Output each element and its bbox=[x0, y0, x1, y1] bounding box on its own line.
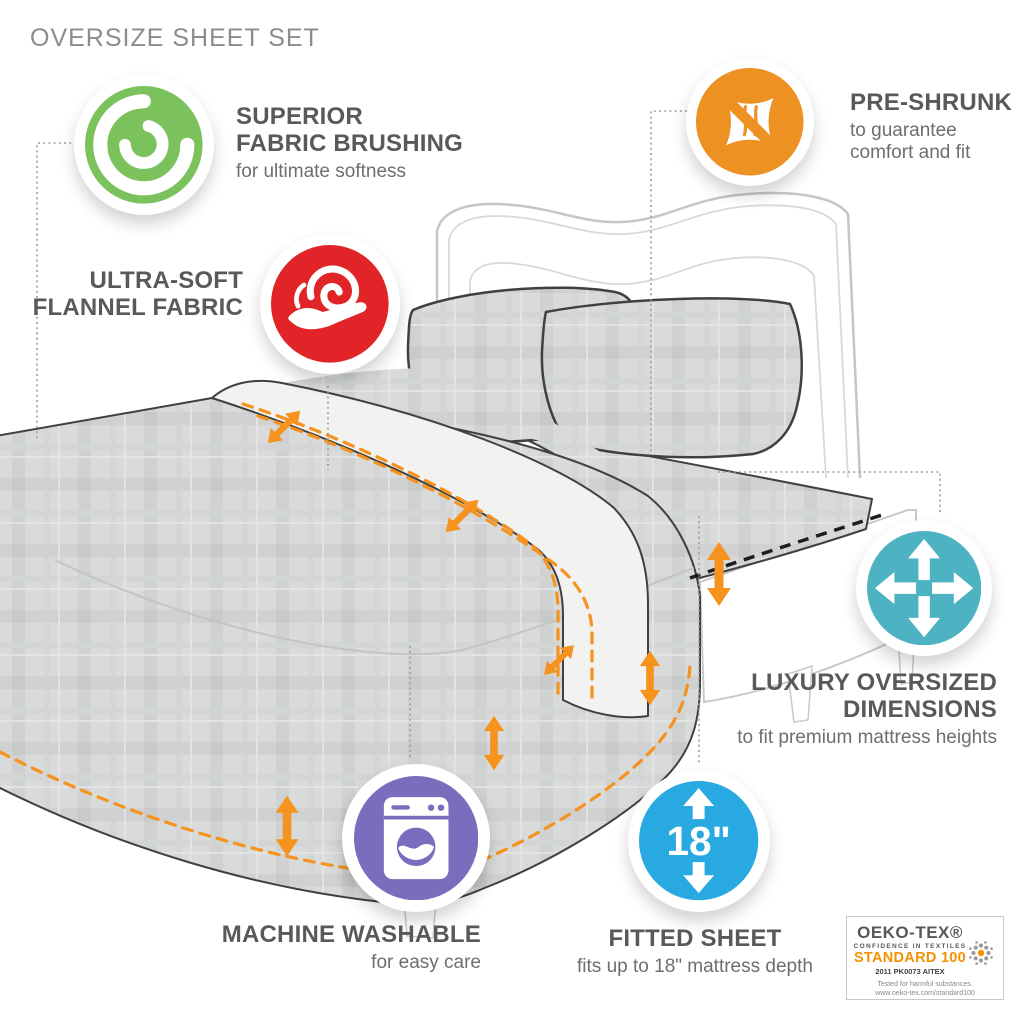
feature-subtitle: to guarantee bbox=[850, 120, 1012, 142]
feature-subtitle: comfort and fit bbox=[850, 142, 1012, 164]
feature-title-line: MACHINE WASHABLE bbox=[222, 922, 481, 949]
feature-title-line: FLANNEL FABRIC bbox=[33, 295, 243, 322]
feature-subtitle: for easy care bbox=[222, 952, 481, 974]
feature-text-dimensions: LUXURY OVERSIZED DIMENSIONS to fit premi… bbox=[737, 670, 997, 749]
badge-washable bbox=[342, 764, 490, 912]
feature-text-brushing: SUPERIOR FABRIC BRUSHING for ultimate so… bbox=[236, 104, 463, 183]
feature-title-line: FITTED SHEET bbox=[535, 926, 855, 953]
feature-subtitle: to fit premium mattress heights bbox=[737, 727, 997, 749]
feature-text-washable: MACHINE WASHABLE for easy care bbox=[222, 922, 481, 974]
depth-value-label: 18" bbox=[667, 818, 731, 864]
no-shrink-fabric-icon bbox=[696, 68, 804, 176]
badge-fabric-brushing bbox=[74, 75, 214, 215]
hand-holding-fabric-icon bbox=[271, 245, 389, 363]
oeko-tex-brand: OEKO-TEX® bbox=[847, 924, 973, 941]
pillow-right bbox=[542, 298, 802, 457]
brushed-fabric-swirl-icon bbox=[85, 86, 203, 204]
feature-title-line: LUXURY OVERSIZED bbox=[737, 670, 997, 697]
expand-arrows-icon bbox=[867, 531, 981, 645]
feature-title-line: SUPERIOR bbox=[236, 104, 463, 131]
oeko-tex-flower-icon bbox=[966, 938, 996, 968]
feature-text-preshrunk: PRE-SHRUNK to guarantee comfort and fit bbox=[850, 90, 1012, 165]
feature-text-flannel: ULTRA-SOFT FLANNEL FABRIC bbox=[33, 268, 243, 322]
feature-title-line: FABRIC BRUSHING bbox=[236, 131, 463, 158]
oeko-tex-certification-box: OEKO-TEX® CONFIDENCE IN TEXTILES STANDAR… bbox=[846, 916, 1004, 1000]
badge-preshrunk bbox=[686, 58, 814, 186]
infographic-canvas: OVERSIZE SHEET SET bbox=[0, 0, 1024, 1024]
feature-subtitle: fits up to 18" mattress depth bbox=[535, 956, 855, 978]
feature-title-line: PRE-SHRUNK bbox=[850, 90, 1012, 117]
badge-fitted-sheet: 18" bbox=[628, 770, 770, 912]
badge-flannel bbox=[260, 234, 400, 374]
depth-arrows-icon: 18" bbox=[639, 781, 758, 900]
badge-dimensions bbox=[856, 520, 992, 656]
oeko-tex-note: Tested for harmful substances. bbox=[847, 980, 1003, 989]
feature-title-line: ULTRA-SOFT bbox=[33, 268, 243, 295]
feature-text-fitted: FITTED SHEET fits up to 18" mattress dep… bbox=[535, 926, 855, 978]
washing-machine-icon bbox=[354, 776, 478, 900]
oeko-tex-code: 2011 PK0073 AITEX bbox=[847, 967, 973, 976]
page-title: OVERSIZE SHEET SET bbox=[30, 24, 320, 53]
oeko-tex-note: www.oeko-tex.com/standard100 bbox=[847, 989, 1003, 998]
oeko-tex-tagline: CONFIDENCE IN TEXTILES bbox=[847, 943, 973, 950]
feature-subtitle: for ultimate softness bbox=[236, 161, 463, 183]
oeko-tex-standard: STANDARD 100 bbox=[847, 951, 973, 966]
feature-title-line: DIMENSIONS bbox=[737, 697, 997, 724]
